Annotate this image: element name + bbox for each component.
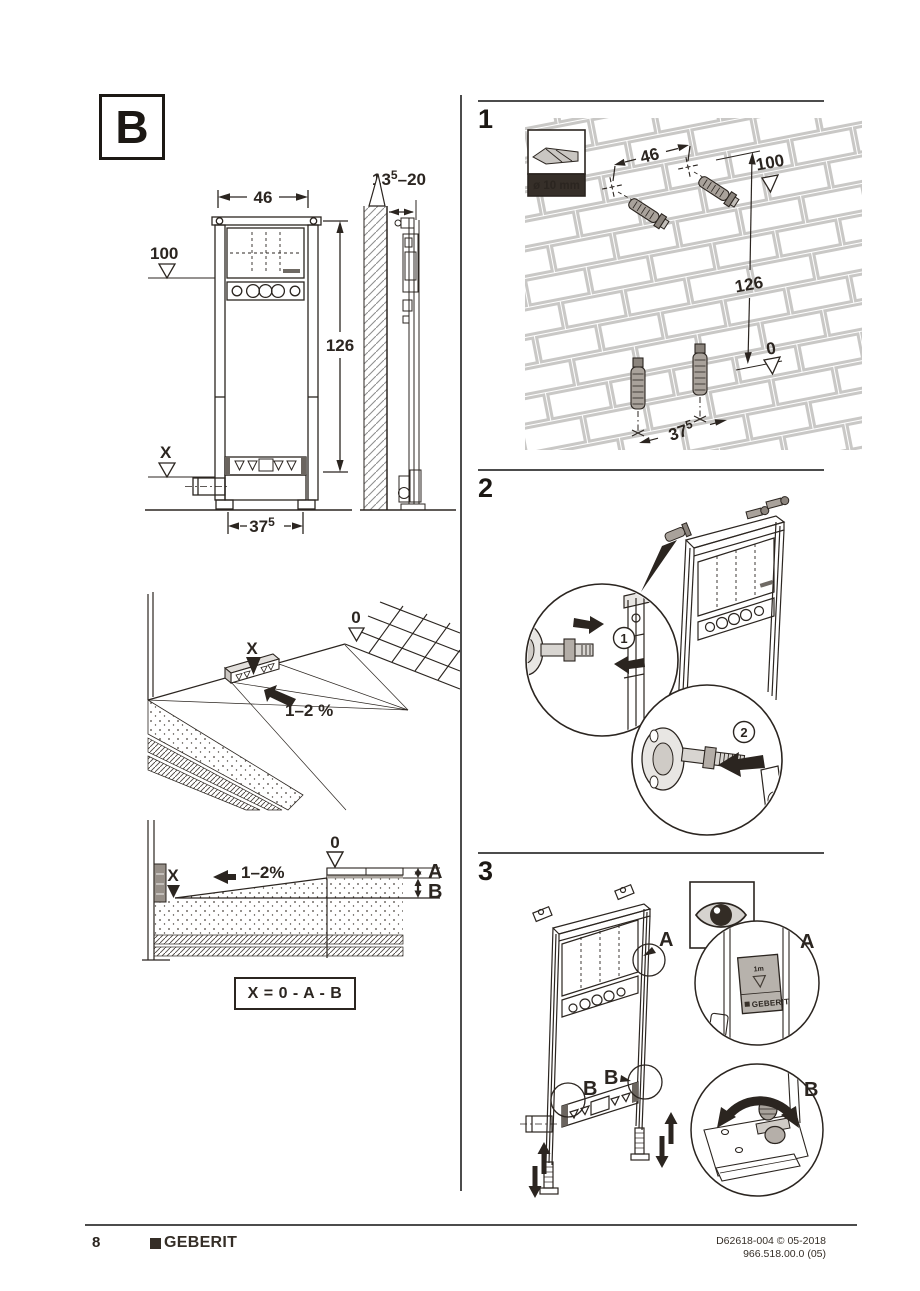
formula-box: X = 0 - A - B [234, 977, 356, 1010]
slope-arrow-icon [213, 870, 236, 884]
wall-hatch [364, 206, 387, 510]
label-b: B [583, 1078, 597, 1100]
callout-1-number: 1 [620, 631, 627, 646]
geberit-microtext [760, 580, 774, 588]
frame-outline [145, 190, 352, 534]
height-adjust-arrows [529, 1112, 678, 1198]
floor-outline [148, 592, 460, 700]
slope-label: 1–2 % [285, 701, 333, 720]
tile-layer [327, 868, 403, 875]
step2-divider [478, 469, 824, 471]
bracket-clamps [562, 1082, 638, 1127]
level-100-label: 100 [150, 244, 178, 263]
zero-level-marker [349, 628, 364, 641]
dim-a-label: A [428, 861, 442, 883]
dim-height: 126 [326, 336, 354, 355]
label-b: B [604, 1067, 618, 1089]
floor-perspective-drawing: X 0 1–2 % [140, 592, 460, 810]
callout-circle-b-right [628, 1065, 662, 1099]
step1-divider [478, 100, 824, 102]
section-label: B [115, 100, 148, 154]
step-1-drawing: ø 10 mm 46 100 [490, 108, 862, 460]
manual-page: B [0, 0, 920, 1291]
zero-level-label: 0 [351, 608, 360, 627]
label-b: B [804, 1079, 818, 1101]
cross-section-drawing: X 0 1–2% A B [140, 818, 460, 968]
column-divider [460, 95, 462, 1191]
base-bracket-marks [235, 459, 296, 471]
x-level-label: X [246, 639, 258, 658]
callout-wedge [641, 540, 677, 592]
x-level-marker [167, 885, 180, 898]
zero-level-marker [327, 852, 343, 867]
mounting-frame [520, 885, 650, 1194]
dim-b-arrow [415, 879, 422, 899]
dim-b-label: B [428, 881, 442, 903]
wall-plug-icon [693, 344, 707, 395]
zero-level-label: 0 [330, 833, 339, 852]
drill-bit-icon: ø 10 mm [528, 130, 585, 196]
step-2-drawing: 1 2 [478, 478, 863, 850]
label-a: A [800, 931, 814, 953]
dim-width: 46 [254, 188, 273, 207]
dim-a-arrow [415, 868, 422, 878]
top-anchor-bolts [746, 496, 790, 520]
step-3-drawing: A B B 1m GEBERIT A [478, 862, 868, 1202]
doc-code: D62618-004 © 05-2018 [600, 1235, 826, 1248]
callout-2-number: 2 [740, 725, 747, 740]
wall-drain-unit [154, 864, 166, 902]
geberit-microtext [283, 269, 300, 273]
insulation-layer [154, 947, 403, 956]
wall-plug-icon [631, 358, 645, 409]
geberit-logo-square-icon [150, 1238, 161, 1249]
doc-version: 966.518.00.0 (05) [600, 1248, 826, 1261]
page-number: 8 [92, 1234, 100, 1251]
x-level-label: X [167, 866, 179, 885]
slope-label: 1–2% [241, 863, 284, 882]
label-a: A [659, 929, 673, 951]
side-view-drawing: 135–20 [352, 160, 464, 560]
section-label-box: B [99, 94, 165, 160]
drill-diameter-label: ø 10 mm [533, 180, 580, 192]
front-view-drawing: 46 100 126 X 375 [140, 160, 370, 560]
dim-arrowheads [218, 193, 344, 529]
level-x-label: X [160, 443, 172, 462]
geberit-logo-text: GEBERIT [164, 1234, 237, 1252]
footer-divider [85, 1224, 857, 1226]
insulation-layer [154, 935, 403, 944]
doc-reference: D62618-004 © 05-2018 966.518.00.0 (05) [600, 1235, 826, 1261]
geberit-logo: GEBERIT [150, 1234, 237, 1252]
tag-meter-label: 1m [753, 966, 764, 974]
screed-body [154, 878, 403, 935]
formula-text: X = 0 - A - B [248, 985, 343, 1003]
step3-divider [478, 852, 824, 854]
dim-base-width: 375 [249, 515, 275, 536]
